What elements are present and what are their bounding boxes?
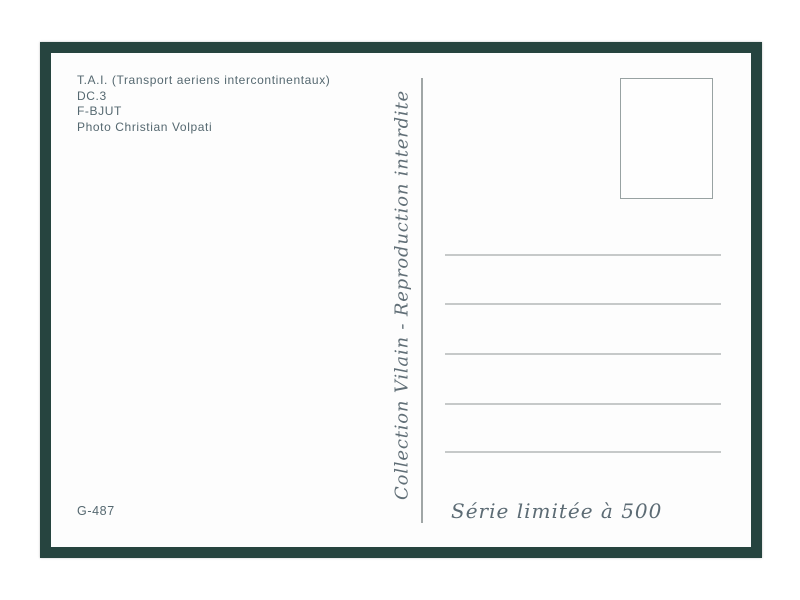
divider-line (421, 78, 423, 523)
address-line (445, 303, 721, 305)
collection-credit-text: Collection Vilain - Reproduction interdi… (392, 90, 413, 500)
address-line (445, 254, 721, 256)
caption-line-photographer: Photo Christian Volpati (77, 120, 330, 136)
caption-line-airline: T.A.I. (Transport aeriens intercontinent… (77, 73, 330, 89)
catalog-reference-number: G-487 (77, 504, 115, 518)
stamp-box (620, 78, 713, 199)
postcard-back: T.A.I. (Transport aeriens intercontinent… (51, 53, 751, 547)
address-line (445, 403, 721, 405)
photo-caption-block: T.A.I. (Transport aeriens intercontinent… (77, 73, 330, 135)
limited-series-text: Série limitée à 500 (451, 499, 662, 523)
address-line (445, 451, 721, 453)
postcard-frame: T.A.I. (Transport aeriens intercontinent… (40, 42, 762, 558)
address-line (445, 353, 721, 355)
caption-line-aircraft: DC.3 (77, 89, 330, 105)
caption-line-registration: F-BJUT (77, 104, 330, 120)
